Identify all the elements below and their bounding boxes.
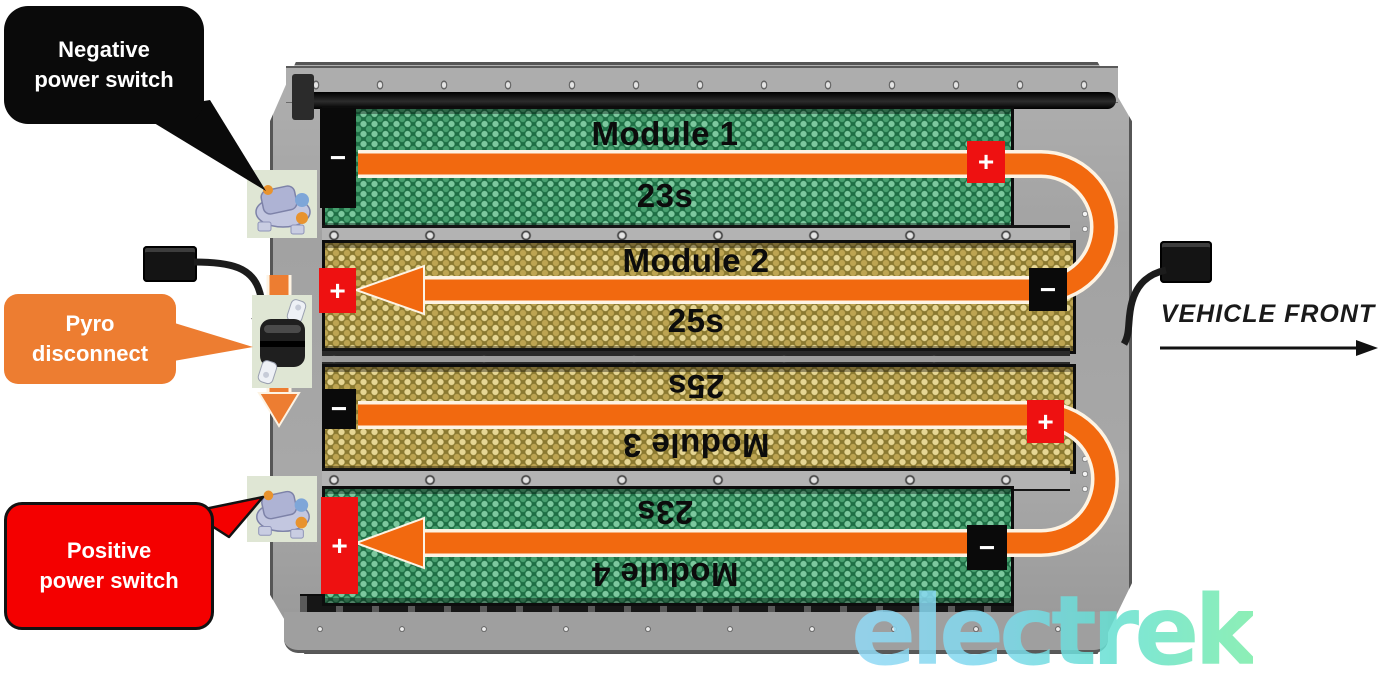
positive-power-switch-thumbnail <box>247 476 317 542</box>
callout-line: Pyro <box>66 309 115 339</box>
battery-pack-diagram: − + + − − + + − <box>0 0 1398 689</box>
callout-line: power switch <box>34 65 173 95</box>
left-harness-connector <box>143 246 197 282</box>
contactor-icon <box>247 476 317 542</box>
right-harness-connector <box>1160 241 1212 283</box>
module-4-cell-count: 23s <box>322 494 1008 530</box>
module-2-label: Module 2 <box>322 243 1070 279</box>
callout-line: Positive <box>67 536 151 566</box>
callout-pyro-disconnect: Pyro disconnect <box>4 294 176 384</box>
vehicle-front-arrowhead <box>1356 340 1378 356</box>
pack-rail-bolts-upper <box>1079 192 1091 238</box>
contactor-icon <box>247 170 317 238</box>
negative-power-switch-thumbnail <box>247 170 317 238</box>
electrek-watermark: electrek <box>851 583 1253 679</box>
pack-corner-bracket <box>292 74 314 120</box>
plus-sign: + <box>329 277 345 305</box>
callout-negative-power-switch: Negative power switch <box>4 6 204 124</box>
module-1-cell-count: 23s <box>322 178 1008 214</box>
module-3-label: Module 3 <box>322 427 1070 463</box>
callout-positive-power-switch: Positive power switch <box>4 502 214 630</box>
module-2-cell-count: 25s <box>322 303 1070 339</box>
pack-rail-bolts-lower <box>1079 452 1091 498</box>
module-3-cell-count: 25s <box>322 368 1070 404</box>
callout-line: disconnect <box>32 339 148 369</box>
pyro-disconnect-thumbnail <box>252 295 312 388</box>
callout-line: power switch <box>39 566 178 596</box>
vehicle-front-label: VEHICLE FRONT <box>1158 300 1378 329</box>
pyro-callout-tail <box>168 321 253 362</box>
module-1-label: Module 1 <box>322 116 1008 152</box>
minus-sign: − <box>1040 276 1056 304</box>
plus-sign: + <box>978 148 994 176</box>
pyro-fuse-icon <box>252 295 312 388</box>
callout-line: Negative <box>58 35 150 65</box>
